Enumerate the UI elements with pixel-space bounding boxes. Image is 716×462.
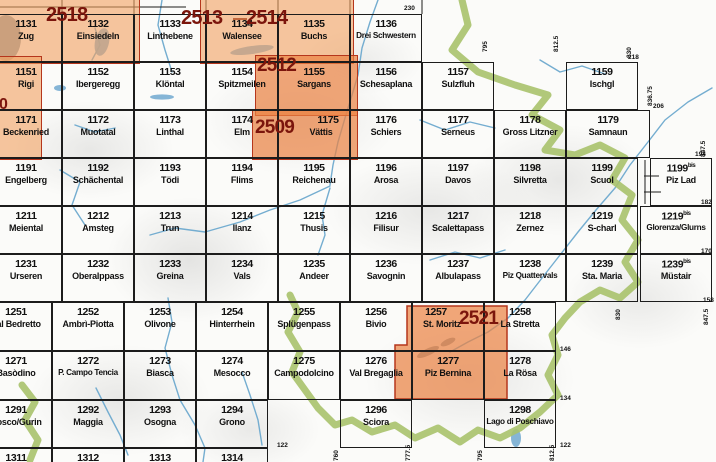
- sheet-cell-1178[interactable]: 1178Gross Litzner: [494, 110, 566, 158]
- sheet-name: Maggia: [53, 418, 123, 427]
- sheet-number: 1192: [63, 163, 133, 175]
- bis-suffix: bis: [683, 259, 690, 265]
- sheet-number: 1313: [125, 453, 195, 462]
- sheet-cell-1272[interactable]: 1272P. Campo Tencia: [52, 351, 124, 400]
- sheet-name: Klöntal: [135, 80, 205, 89]
- sheet-name: Flims: [207, 176, 277, 185]
- sheet-number: 1156: [351, 67, 421, 79]
- sheet-name: Amsteg: [63, 224, 133, 233]
- sheet-cell-1219[interactable]: 1219S-charl: [566, 206, 638, 254]
- sheet-name: Linthebene: [135, 32, 205, 41]
- sheet-number: 1312: [53, 453, 123, 462]
- sheet-cell-1277[interactable]: 1277Piz Bernina: [412, 351, 484, 400]
- sheet-name: Silvretta: [495, 176, 565, 185]
- sheet-name: Filisur: [351, 224, 421, 233]
- sheet-number: 1277: [413, 356, 483, 368]
- sheet-cell-1232[interactable]: 1232Oberalppass: [62, 254, 134, 302]
- grid-coordinate-label-vertical: 777.5: [406, 445, 413, 461]
- sheet-number: 1272: [53, 356, 123, 368]
- sheet-cell-1217[interactable]: 1217Scalettapass: [422, 206, 494, 254]
- sheet-name: Sargans: [279, 80, 349, 89]
- sheet-number: 1251: [0, 307, 51, 319]
- sheet-name: Bivio: [341, 320, 411, 329]
- sheet-cell-1236[interactable]: 1236Savognin: [350, 254, 422, 302]
- sheet-name: Andeer: [279, 272, 349, 281]
- sheet-name: Sulzfluh: [423, 80, 493, 89]
- grid-coordinate-label-vertical: 795: [483, 41, 490, 52]
- sheet-name: Arosa: [351, 176, 421, 185]
- grid-coordinate-label: 146: [560, 347, 571, 354]
- sheet-cell-1239[interactable]: 1239Sta. Maria: [566, 254, 638, 302]
- sheet-number: 1219: [567, 211, 637, 223]
- sheet-cell-1274[interactable]: 1274Mesocco: [196, 351, 268, 400]
- grid-coordinate-label-vertical: 847.5: [704, 309, 711, 325]
- sheet-cell-1152[interactable]: 1152Ibergeregg: [62, 62, 134, 110]
- sheet-name: Rigi: [0, 80, 61, 89]
- sheet-number: 1195: [279, 163, 349, 175]
- sheet-cell-1273[interactable]: 1273Biasca: [124, 351, 196, 400]
- sheet-number: 1219bis: [641, 211, 711, 223]
- grid-coordinate-label: 122: [277, 443, 288, 450]
- sheet-name: Reichenau: [279, 176, 349, 185]
- sheet-name: Ischgl: [567, 80, 637, 89]
- sheet-name: Piz Quattervals: [495, 272, 565, 281]
- sheet-name: Olivone: [125, 320, 195, 329]
- sheet-number: 1191: [0, 163, 61, 175]
- sheet-name: Drei Schwestern: [351, 32, 421, 41]
- sheet-number: 1151: [0, 67, 61, 79]
- grid-coordinate-label: 134: [560, 396, 571, 403]
- sheet-number: 1214: [207, 211, 277, 223]
- sheet-number: 1212: [63, 211, 133, 223]
- sheet-number: 1153: [135, 67, 205, 79]
- sheet-name: Sta. Maria: [567, 272, 637, 281]
- sheet-cell-1276[interactable]: 1276Val Bregaglia: [340, 351, 412, 400]
- sheet-number: 1296: [341, 405, 411, 417]
- sheet-cell-1314[interactable]: 1314: [196, 448, 268, 462]
- sheet-cell-1151[interactable]: 1151Rigi: [0, 62, 62, 110]
- sheet-cell-1199[interactable]: 1199Scuol: [566, 158, 638, 206]
- sheet-number: 1278: [485, 356, 555, 368]
- grid-coordinate-label-vertical: 760: [334, 450, 341, 461]
- sheet-number: 1271: [0, 356, 51, 368]
- sheet-name: Spitzmeilen: [207, 80, 277, 89]
- sheet-cell-1275[interactable]: 1275Campodolcino: [268, 351, 340, 400]
- sheet-number: 1298: [485, 405, 555, 417]
- sheet-number: 1294: [197, 405, 267, 417]
- sheet-cell-1198[interactable]: 1198Silvretta: [494, 158, 566, 206]
- sheet-cell-1291[interactable]: 1291Bosco/Gurin: [0, 400, 52, 448]
- sheet-number: 1311: [0, 453, 51, 462]
- grid-coordinate-label-vertical: 812.5: [554, 36, 561, 52]
- sheet-number: 1291: [0, 405, 51, 417]
- sheet-cell-1239bis[interactable]: 1239bisMüstair: [640, 254, 712, 302]
- sheet-number: 1211: [0, 211, 61, 223]
- sheet-cell-1191[interactable]: 1191Engelberg: [0, 158, 62, 206]
- sheet-name: Glorenza/Glurns: [641, 224, 711, 233]
- sheet-cell-1156[interactable]: 1156Schesaplana: [350, 62, 422, 110]
- sheet-cell-1173[interactable]: 1173Linthal: [134, 110, 206, 158]
- sheet-number: 1136: [351, 19, 421, 31]
- sheet-name: Grono: [197, 418, 267, 427]
- sheet-number: 1235: [279, 259, 349, 271]
- composite-sheet-label: 2514: [246, 8, 287, 28]
- sheet-number: 1178: [495, 115, 565, 127]
- grid-coordinate-label: 158: [703, 298, 714, 305]
- sheet-name: Basòdino: [0, 369, 51, 378]
- grid-coordinate-label: 122: [560, 443, 571, 450]
- sheet-cell-1253[interactable]: 1253Olivone: [124, 302, 196, 351]
- grid-coordinate-label: 206: [653, 104, 664, 111]
- sheet-cell-1219bis[interactable]: 1219bisGlorenza/Glurns: [640, 206, 712, 254]
- sheet-number: 1218: [495, 211, 565, 223]
- sheet-name: Thusis: [279, 224, 349, 233]
- sheet-name: Linthal: [135, 128, 205, 137]
- sheet-cell-1176[interactable]: 1176Schiers: [350, 110, 422, 158]
- sheet-name: Urseren: [0, 272, 61, 281]
- sheet-name: Albulapass: [423, 272, 493, 281]
- sheet-name: Scuol: [567, 176, 637, 185]
- grid-coordinate-label-vertical: 812.5: [550, 445, 557, 461]
- grid-coordinate-label: 230: [404, 6, 415, 13]
- sheet-name: Biasca: [125, 369, 195, 378]
- sheet-name: Schächental: [63, 176, 133, 185]
- sheet-name: Oberalppass: [63, 272, 133, 281]
- sheet-cell-1298[interactable]: 1298Lago di Poschiavo: [484, 400, 556, 448]
- sheet-number: 1198: [495, 163, 565, 175]
- sheet-name: Val Bregaglia: [341, 369, 411, 378]
- sheet-cell-1271[interactable]: 1271Basòdino: [0, 351, 52, 400]
- sheet-name: Mesocco: [197, 369, 267, 378]
- grid-coordinate-label-vertical: 830: [616, 309, 623, 320]
- sheet-number: 1213: [135, 211, 205, 223]
- sheet-number: 1238: [495, 259, 565, 271]
- sheet-number: 1254: [197, 307, 267, 319]
- sheet-cell-1159[interactable]: 1159Ischgl: [566, 62, 638, 110]
- sheet-cell-1214[interactable]: 1214Ilanz: [206, 206, 278, 254]
- sheet-number: 1215: [279, 211, 349, 223]
- sheet-name: Müstair: [641, 272, 711, 281]
- sheet-number: 1173: [135, 115, 205, 127]
- sheet-cell-1136[interactable]: 1136Drei Schwestern: [350, 14, 422, 62]
- sheet-name: Ambrì-Piotta: [53, 320, 123, 329]
- composite-sheet-label: 2521: [459, 309, 498, 328]
- sheet-number: 1217: [423, 211, 493, 223]
- sheet-cell-1234[interactable]: 1234Vals: [206, 254, 278, 302]
- sheet-number: 1253: [125, 307, 195, 319]
- sheet-number: 1239bis: [641, 259, 711, 271]
- sheet-cell-1215[interactable]: 1215Thusis: [278, 206, 350, 254]
- sheet-cell-1194[interactable]: 1194Flims: [206, 158, 278, 206]
- sheet-cell-1293[interactable]: 1293Osogna: [124, 400, 196, 448]
- sheet-cell-1213[interactable]: 1213Trun: [134, 206, 206, 254]
- grid-coordinate-label: 182: [701, 200, 712, 207]
- sheet-number: 1276: [341, 356, 411, 368]
- sheet-number: 1194: [207, 163, 277, 175]
- composite-sheet-label: 2509: [255, 118, 294, 137]
- sheet-name: La Rösa: [485, 369, 555, 378]
- sheet-name: Osogna: [125, 418, 195, 427]
- sheet-cell-1313[interactable]: 1313: [124, 448, 196, 462]
- sheet-number: 1172: [63, 115, 133, 127]
- sheet-name: Ibergeregg: [63, 80, 133, 89]
- bis-suffix: bis: [688, 163, 695, 169]
- sheet-name: Trun: [135, 224, 205, 233]
- sheet-name: P. Campo Tencia: [53, 369, 123, 378]
- sheet-number: 1314: [197, 453, 267, 462]
- sheet-number: 1234: [207, 259, 277, 271]
- sheet-cell-1252[interactable]: 1252Ambrì-Piotta: [52, 302, 124, 351]
- sheet-cell-1172[interactable]: 1172Muotatal: [62, 110, 134, 158]
- sheet-cell-1197[interactable]: 1197Davos: [422, 158, 494, 206]
- sheet-name: Val Bedretto: [0, 320, 51, 329]
- sheet-number: 1233: [135, 259, 205, 271]
- sheet-cell-1177[interactable]: 1177Serneus: [422, 110, 494, 158]
- sheet-cell-1193[interactable]: 1193Tödi: [134, 158, 206, 206]
- sheet-name: Davos: [423, 176, 493, 185]
- composite-sheet-label: 0: [0, 97, 7, 113]
- sheet-number: 1216: [351, 211, 421, 223]
- sheet-cell-1231[interactable]: 1231Urseren: [0, 254, 62, 302]
- sheet-number: 1177: [423, 115, 493, 127]
- sheet-name: Bosco/Gurin: [0, 418, 51, 427]
- sheet-cell-1211[interactable]: 1211Meiental: [0, 206, 62, 254]
- sheet-name: Sciora: [341, 418, 411, 427]
- sheet-name: Splügenpass: [269, 320, 339, 329]
- sheet-cell-1216[interactable]: 1216Filisur: [350, 206, 422, 254]
- sheet-cell-1157[interactable]: 1157Sulzfluh: [422, 62, 494, 110]
- sheet-name: Piz Lad: [651, 176, 711, 185]
- sheet-name: Beckenried: [0, 128, 61, 137]
- sheet-name: Buchs: [279, 32, 349, 41]
- sheet-name: Scalettapass: [423, 224, 493, 233]
- sheet-name: Gross Litzner: [495, 128, 565, 137]
- bis-suffix: bis: [683, 211, 690, 217]
- grid-coordinate-label: 170: [701, 249, 712, 256]
- composite-sheet-label: 2512: [257, 56, 296, 75]
- sheet-number: 1135: [279, 19, 349, 31]
- sheet-name: Engelberg: [0, 176, 61, 185]
- sheet-cell-1196[interactable]: 1196Arosa: [350, 158, 422, 206]
- map-sheet-index: 1131Zug1132Einsiedeln1133Linthebene1134W…: [0, 0, 716, 462]
- sheet-name: Muotatal: [63, 128, 133, 137]
- sheet-cell-1251[interactable]: 1251Val Bedretto: [0, 302, 52, 351]
- sheet-name: Hinterrhein: [197, 320, 267, 329]
- sheet-name: Schiers: [351, 128, 421, 137]
- sheet-number: 1273: [125, 356, 195, 368]
- sheet-number: 1199bis: [651, 163, 711, 175]
- sheet-cell-1238[interactable]: 1238Piz Quattervals: [494, 254, 566, 302]
- sheet-name: Einsiedeln: [63, 32, 133, 41]
- sheet-cell-1278[interactable]: 1278La Rösa: [484, 351, 556, 400]
- sheet-cell-1235[interactable]: 1235Andeer: [278, 254, 350, 302]
- sheet-name: Schesaplana: [351, 80, 421, 89]
- sheet-cell-1192[interactable]: 1192Schächental: [62, 158, 134, 206]
- sheet-name: Meiental: [0, 224, 61, 233]
- sheet-number: 1239: [567, 259, 637, 271]
- sheet-cell-1218[interactable]: 1218Zernez: [494, 206, 566, 254]
- sheet-cell-1179[interactable]: 1179Samnaun: [566, 110, 650, 158]
- sheet-number: 1255: [269, 307, 339, 319]
- sheet-number: 1293: [125, 405, 195, 417]
- sheet-cell-1237[interactable]: 1237Albulapass: [422, 254, 494, 302]
- sheet-number: 1193: [135, 163, 205, 175]
- sheet-number: 1197: [423, 163, 493, 175]
- sheet-cell-1311[interactable]: 1311: [0, 448, 52, 462]
- sheet-name: Savognin: [351, 272, 421, 281]
- sheet-cell-1153[interactable]: 1153Klöntal: [134, 62, 206, 110]
- sheet-cell-1254[interactable]: 1254Hinterrhein: [196, 302, 268, 351]
- grid-coordinate-label-vertical: 847.5: [701, 141, 708, 157]
- sheet-number: 1159: [567, 67, 637, 79]
- grid-coordinate-label-vertical: 830: [627, 47, 634, 58]
- sheet-number: 1179: [567, 115, 649, 127]
- sheet-name: Tödi: [135, 176, 205, 185]
- sheet-name: Ilanz: [207, 224, 277, 233]
- sheet-number: 1196: [351, 163, 421, 175]
- sheet-name: Samnaun: [567, 128, 649, 137]
- sheet-number: 1274: [197, 356, 267, 368]
- sheet-name: Walensee: [207, 32, 277, 41]
- sheet-number: 1275: [269, 356, 339, 368]
- sheet-number: 1237: [423, 259, 493, 271]
- grid-coordinate-label-vertical: 795: [478, 450, 485, 461]
- sheet-name: Zug: [0, 32, 61, 41]
- sheet-number: 1252: [53, 307, 123, 319]
- sheet-cell-1255[interactable]: 1255Splügenpass: [268, 302, 340, 351]
- sheet-name: Campodolcino: [269, 369, 339, 378]
- composite-sheet-label: 2513: [181, 8, 222, 28]
- sheet-cell-1171[interactable]: 1171Beckenried: [0, 110, 62, 158]
- sheet-cell-1195[interactable]: 1195Reichenau: [278, 158, 350, 206]
- sheet-name: Zernez: [495, 224, 565, 233]
- sheet-name: Piz Bernina: [413, 369, 483, 378]
- sheet-name: Lago di Poschiavo: [485, 418, 555, 427]
- sheet-number: 1232: [63, 259, 133, 271]
- sheet-name: Vättis: [286, 128, 356, 137]
- sheet-name: Serneus: [423, 128, 493, 137]
- sheet-cell-1292[interactable]: 1292Maggia: [52, 400, 124, 448]
- grid-coordinate-label-vertical: 836.75: [648, 86, 655, 106]
- sheet-number: 1231: [0, 259, 61, 271]
- sheet-number: 1176: [351, 115, 421, 127]
- sheet-number: 1171: [0, 115, 61, 127]
- sheet-number: 1236: [351, 259, 421, 271]
- composite-sheet-label: 2518: [46, 5, 87, 25]
- sheet-cell-1294[interactable]: 1294Grono: [196, 400, 268, 448]
- sheet-name: S-charl: [567, 224, 637, 233]
- sheet-cell-1212[interactable]: 1212Amsteg: [62, 206, 134, 254]
- sheet-number: 1157: [423, 67, 493, 79]
- sheet-name: Vals: [207, 272, 277, 281]
- sheet-number: 1292: [53, 405, 123, 417]
- sheet-number: 1199: [567, 163, 637, 175]
- sheet-number: 1152: [63, 67, 133, 79]
- sheet-cell-1233[interactable]: 1233Greina: [134, 254, 206, 302]
- sheet-cell-1296[interactable]: 1296Sciora: [340, 400, 412, 448]
- sheet-name: Greina: [135, 272, 205, 281]
- sheet-cell-1312[interactable]: 1312: [52, 448, 124, 462]
